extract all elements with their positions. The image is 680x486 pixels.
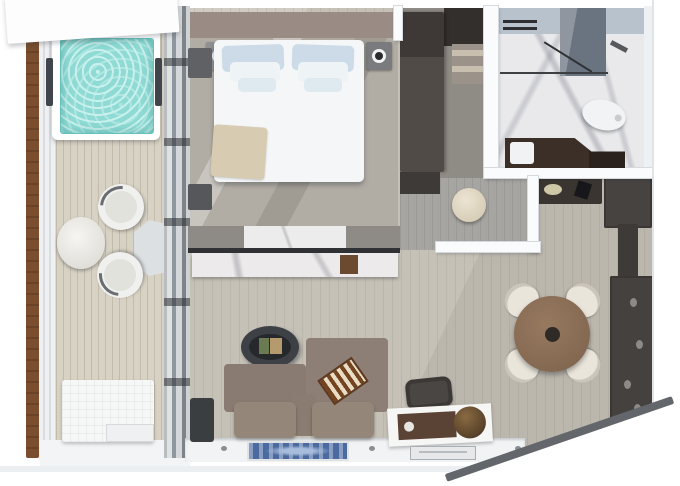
outdoor-lounger [62,380,154,442]
whirlpool-side-pad [155,58,162,106]
wall-fixture [369,446,375,451]
towel-rail [503,27,537,30]
wardrobe-lower-cabinet [400,172,440,194]
wall-shelving-unit [610,276,654,424]
marble-console [192,253,398,277]
divider-shelf [188,226,244,250]
whirlpool-water [60,38,154,134]
wall-bathroom-entry [484,168,654,178]
whirlpool-hot-tub [52,30,160,140]
hull-edge [0,466,520,472]
wall-fixture [221,446,227,451]
shelf-item [636,340,643,349]
globe [453,406,487,440]
whirlpool-side-pad [46,58,53,106]
pillow [238,78,276,92]
pillow [304,78,342,92]
console-lamp [544,184,562,195]
wall-entry-horizontal [436,242,540,252]
round-pouf [452,188,486,222]
closet-shelving [452,44,484,84]
towel-rail [503,20,537,23]
sliding-glass-doors [164,6,190,458]
sofa-cushion [312,402,374,438]
radio-speaker [404,421,415,432]
sink [510,142,534,164]
outdoor-table [57,217,105,269]
entry-console [534,178,602,204]
throw-blanket [210,124,267,180]
wall-closet-bathroom [484,6,498,176]
window-bench [188,48,212,78]
doormat [410,446,476,460]
shower-glass-partition [500,72,608,74]
closet-opening [444,8,484,46]
wall-entry-vertical [528,176,538,252]
side-chair [190,398,214,442]
shelf-item [624,380,631,389]
nightstand-right [366,42,392,70]
dining-table [514,296,590,372]
double-bed [214,40,364,182]
sofa [222,336,390,442]
media-console [387,403,493,446]
blue-runner-rug [247,441,349,461]
console-wood-tray [340,255,358,274]
divider-glass-panel [188,248,400,253]
wall-unit-post [618,224,638,278]
entry-tall-cabinet [604,174,652,228]
wood-privacy-divider [26,8,39,458]
lounger-step [106,424,154,442]
divider-shelf [346,226,400,248]
wardrobe [400,12,444,172]
console-decor [574,180,592,200]
window-bench [188,184,212,210]
divider-marble-bench [244,226,346,248]
sofa-cushion [234,402,296,438]
floor-plan [0,0,680,486]
shelf-item [630,298,637,307]
wall-bedroom-closet [394,6,402,40]
dark-lamp [372,49,386,63]
radio [397,411,456,440]
headboard-wall [185,12,400,38]
